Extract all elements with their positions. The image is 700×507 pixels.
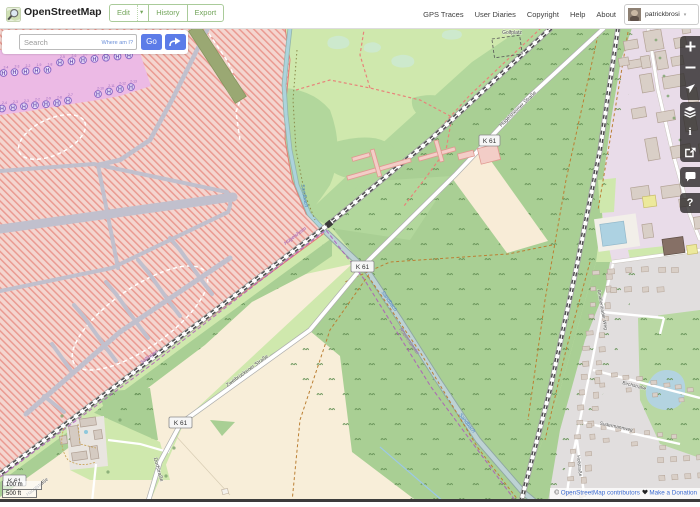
svg-text:H: H bbox=[118, 87, 122, 93]
svg-text:H: H bbox=[129, 85, 133, 91]
svg-text:H: H bbox=[81, 58, 85, 64]
svg-text:H: H bbox=[104, 56, 108, 62]
svg-text:2-4: 2-4 bbox=[2, 101, 7, 105]
svg-text:2-2: 2-2 bbox=[26, 64, 31, 68]
svg-text:K 61: K 61 bbox=[174, 420, 188, 427]
svg-text:2-8: 2-8 bbox=[57, 96, 62, 100]
svg-text:H: H bbox=[22, 104, 26, 110]
svg-text:2-4: 2-4 bbox=[4, 66, 9, 70]
svg-text:2-12: 2-12 bbox=[119, 82, 126, 86]
svg-text:2-13: 2-13 bbox=[130, 80, 137, 84]
svg-text:H: H bbox=[66, 99, 70, 105]
svg-text:1-8: 1-8 bbox=[48, 62, 53, 66]
svg-text:2-9: 2-9 bbox=[46, 97, 51, 101]
svg-text:2-11: 2-11 bbox=[108, 84, 115, 88]
svg-text:H: H bbox=[13, 70, 17, 76]
svg-text:H: H bbox=[33, 103, 37, 109]
svg-text:H: H bbox=[55, 101, 59, 107]
svg-text:2-3: 2-3 bbox=[15, 65, 20, 69]
svg-text:1-9: 1-9 bbox=[37, 63, 42, 67]
svg-text:H: H bbox=[116, 55, 120, 61]
svg-text:H: H bbox=[93, 57, 97, 63]
svg-text:2-3: 2-3 bbox=[24, 99, 29, 103]
svg-text:2-7: 2-7 bbox=[68, 93, 73, 97]
svg-text:2-10: 2-10 bbox=[97, 87, 104, 91]
svg-text:K 61: K 61 bbox=[356, 264, 370, 271]
svg-text:H: H bbox=[35, 69, 39, 75]
svg-text:2-3: 2-3 bbox=[13, 100, 18, 104]
svg-text:H: H bbox=[2, 71, 6, 77]
svg-text:H: H bbox=[44, 102, 48, 108]
svg-text:2-5: 2-5 bbox=[60, 55, 65, 59]
svg-text:H: H bbox=[107, 90, 111, 96]
svg-text:2-2: 2-2 bbox=[35, 98, 40, 102]
svg-text:2-6: 2-6 bbox=[72, 54, 77, 58]
svg-text:Golfplatz: Golfplatz bbox=[502, 30, 522, 36]
svg-text:H: H bbox=[0, 107, 4, 113]
svg-text:H: H bbox=[11, 105, 15, 111]
svg-text:H: H bbox=[70, 59, 74, 65]
svg-text:H: H bbox=[24, 69, 28, 75]
svg-text:H: H bbox=[127, 53, 131, 59]
svg-text:K 61: K 61 bbox=[483, 138, 497, 145]
svg-text:H: H bbox=[58, 61, 62, 67]
svg-text:H: H bbox=[46, 68, 50, 74]
svg-text:H: H bbox=[96, 92, 100, 98]
